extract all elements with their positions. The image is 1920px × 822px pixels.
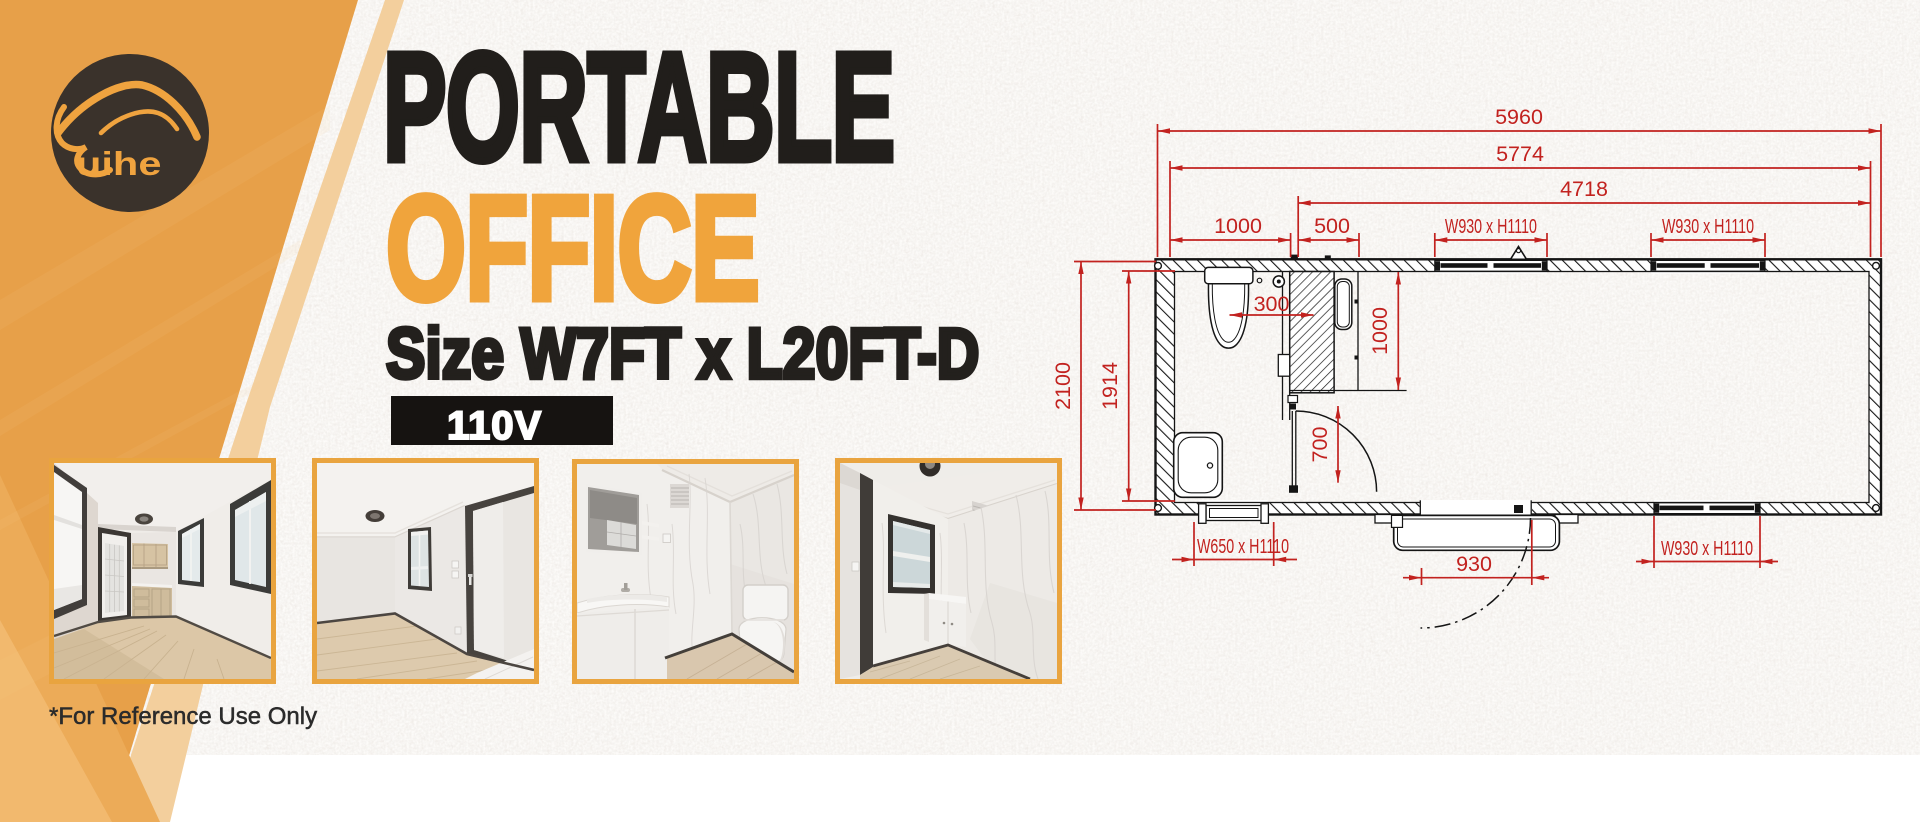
- svg-text:4718: 4718: [1560, 177, 1608, 201]
- svg-text:W930 x H1110: W930 x H1110: [1662, 216, 1754, 238]
- svg-text:300: 300: [1254, 292, 1290, 316]
- svg-text:uihe: uihe: [76, 145, 161, 182]
- svg-text:5774: 5774: [1496, 142, 1544, 166]
- svg-text:5960: 5960: [1495, 105, 1543, 129]
- svg-text:W650 x H1110: W650 x H1110: [1197, 536, 1289, 558]
- svg-text:W930 x H1110: W930 x H1110: [1445, 216, 1537, 238]
- svg-text:2100: 2100: [1051, 362, 1075, 410]
- svg-text:1000: 1000: [1368, 307, 1392, 355]
- svg-text:500: 500: [1314, 214, 1350, 238]
- svg-text:1000: 1000: [1214, 214, 1262, 238]
- svg-text:930: 930: [1456, 552, 1492, 576]
- svg-text:W930 x H1110: W930 x H1110: [1661, 538, 1753, 560]
- svg-text:1914: 1914: [1098, 362, 1122, 410]
- svg-text:700: 700: [1308, 427, 1332, 463]
